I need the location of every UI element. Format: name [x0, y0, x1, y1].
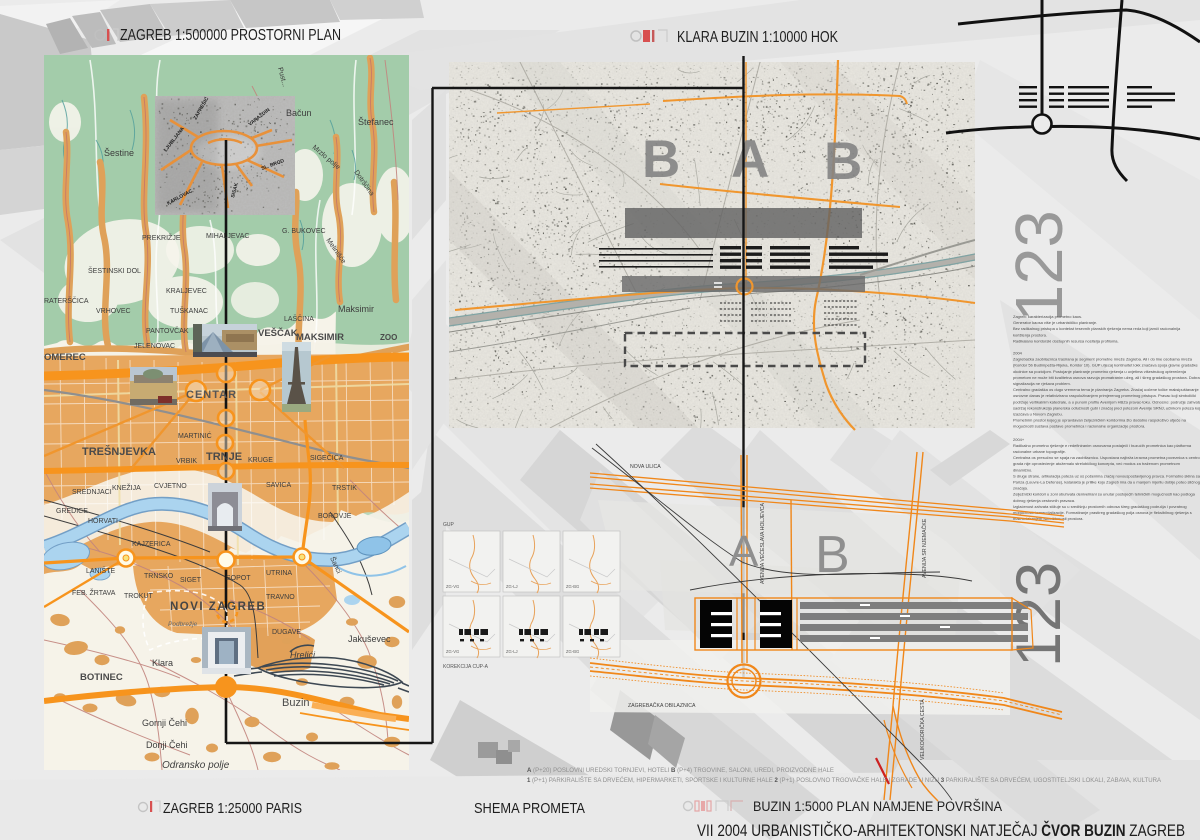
svg-text:Centralno gradaška os dugo vre: Centralno gradaška os dugo vremena tema … — [1013, 387, 1199, 392]
svg-text:Gornji Čehi: Gornji Čehi — [142, 718, 187, 728]
svg-text:TREŠNJEVKA: TREŠNJEVKA — [82, 445, 156, 458]
svg-text:Zagrebačka zaobilaznica trasir: Zagrebačka zaobilaznica trasirana je seg… — [1013, 357, 1193, 362]
svg-text:KLARA BUZIN 1:10000 HOK: KLARA BUZIN 1:10000 HOK — [677, 29, 839, 46]
svg-text:SREDNJACI: SREDNJACI — [72, 489, 112, 496]
svg-text:HORVATI: HORVATI — [88, 518, 118, 525]
svg-text:ZOO: ZOO — [380, 333, 397, 342]
svg-text:Podbrežje: Podbrežje — [168, 621, 198, 628]
svg-text:MAKSIMIR: MAKSIMIR — [296, 332, 344, 343]
svg-text:ZAGREB 1:500000 PROSTORNI PLAN: ZAGREB 1:500000 PROSTORNI PLAN — [120, 27, 341, 44]
svg-text:osnovne danas je relativiziran: osnovne danas je relativizirano raspolož… — [1013, 393, 1196, 398]
svg-text:mogućnosti sustava postave pro: mogućnosti sustava postave prometnica i … — [1013, 424, 1145, 429]
svg-text:A: A — [731, 130, 769, 189]
svg-text:Jakuševec: Jakuševec — [348, 634, 391, 644]
svg-text:grada nije oprostećenje atožem: grada nije oprostećenje atožemalo strelo… — [1013, 461, 1181, 466]
svg-text:LAŠČINA: LAŠČINA — [284, 314, 314, 323]
svg-text:TROKUT: TROKUT — [124, 593, 154, 600]
svg-text:CVJETNO: CVJETNO — [154, 483, 187, 490]
svg-text:Zagreb: karakterizacija promet: Zagreb: karakterizacija prometno kaos. — [1013, 314, 1082, 319]
svg-text:B: B — [815, 526, 850, 584]
svg-text:Donji Čehi: Donji Čehi — [146, 740, 188, 750]
svg-text:ZG-VG: ZG-VG — [446, 584, 459, 589]
svg-text:GUP: GUP — [443, 522, 455, 528]
svg-text:Bez radikalnog pristupa u kont: Bez radikalnog pristupa u kontekst tesev… — [1013, 326, 1181, 331]
svg-text:dobrog rješenja cestovnih prav: dobrog rješenja cestovnih pravaca. — [1013, 498, 1075, 503]
svg-text:123: 123 — [1002, 210, 1077, 322]
svg-text:FEB. ŽRTAVA: FEB. ŽRTAVA — [72, 588, 116, 597]
svg-text:ZAGREBAČKA OBILAZNICA: ZAGREBAČKA OBILAZNICA — [628, 702, 696, 709]
svg-text:ŠESTINSKI DOL: ŠESTINSKI DOL — [88, 266, 141, 275]
svg-text:(Koridor 5b Budimpešta-Rijeka,: (Koridor 5b Budimpešta-Rijeka, Koridor 1… — [1013, 363, 1198, 368]
svg-text:BOTINEC: BOTINEC — [80, 672, 123, 683]
svg-text:VEŠČAK: VEŠČAK — [258, 327, 298, 339]
svg-text:ZG-LJ: ZG-LJ — [506, 584, 518, 589]
svg-text:Hrelići: Hrelići — [290, 650, 316, 660]
svg-text:AVENIJA SR NJEMAČKE: AVENIJA SR NJEMAČKE — [921, 518, 928, 578]
svg-text:PANTOVČAK: PANTOVČAK — [146, 326, 189, 335]
svg-text:okolnice sa pozicijom. Postoja: okolnice sa pozicijom. Postojanje planir… — [1013, 369, 1187, 374]
svg-text:ZG-LJ: ZG-LJ — [506, 649, 518, 654]
svg-text:G. BUKOVEC: G. BUKOVEC — [282, 228, 326, 235]
svg-text:prometom ne može biti kvalitet: prometom ne može biti kvalitetna osnova … — [1013, 375, 1200, 380]
svg-text:VELIKOGORIČKA CESTA: VELIKOGORIČKA CESTA — [919, 699, 926, 760]
svg-text:Radikalno prometno rješenje e: Radikalno prometno rješenje e redefinira… — [1013, 443, 1192, 448]
svg-text:BUZIN 1:5000 PLAN NAMJENE POVR: BUZIN 1:5000 PLAN NAMJENE POVRŠINA — [753, 799, 1002, 814]
svg-text:ZG-BG: ZG-BG — [566, 649, 579, 654]
svg-text:KRALJEVEC: KRALJEVEC — [166, 288, 207, 295]
svg-text:GREDICE: GREDICE — [56, 508, 88, 515]
svg-text:2004: 2004 — [1013, 351, 1023, 356]
svg-text:Generator kaosa više je urbani: Generator kaosa više je urbanističko pla… — [1013, 320, 1097, 325]
svg-text:LANIŠTE: LANIŠTE — [86, 566, 116, 575]
svg-text:A: A — [729, 527, 759, 576]
svg-text:DUGAVE: DUGAVE — [272, 629, 301, 636]
svg-text:Pariza (Louvre-La Defense), ka: Pariza (Louvre-La Defense), katarakta je… — [1013, 480, 1200, 485]
svg-text:sadržaj rekonstrukcija planers: sadržaj rekonstrukcija planerska odlučno… — [1013, 405, 1200, 410]
svg-text:Klara: Klara — [152, 658, 173, 668]
svg-text:NOVA ULICA: NOVA ULICA — [630, 464, 661, 470]
svg-text:SAVICA: SAVICA — [266, 482, 291, 489]
svg-text:B: B — [824, 132, 862, 191]
svg-text:SIGET: SIGET — [180, 577, 202, 584]
svg-text:NOVI ZAGREB: NOVI ZAGREB — [170, 601, 266, 613]
svg-text:Buzin: Buzin — [282, 697, 310, 709]
svg-text:racionalne urbane topografije.: racionalne urbane topografije. — [1013, 449, 1066, 454]
svg-text:Prometnim prostor kojeg je opr: Prometnim prostor kojeg je opravdavan že… — [1013, 418, 1187, 423]
svg-text:TRNSKO: TRNSKO — [144, 573, 174, 580]
svg-text:Maksimir: Maksimir — [338, 304, 374, 314]
svg-text:Radikalano koridorski dostupni: Radikalano koridorski dostupnih resursa … — [1013, 338, 1119, 343]
svg-text:Bačun: Bačun — [286, 108, 312, 118]
svg-text:MARTINIĆ: MARTINIĆ — [178, 431, 212, 440]
svg-text:dinamično.: dinamično. — [1013, 467, 1032, 472]
svg-text:Odransko polje: Odransko polje — [162, 760, 230, 771]
svg-text:UTRINA: UTRINA — [266, 570, 292, 577]
svg-text:Centralna os presučno se spaja: Centralna os presučno se spaja na zaobil… — [1013, 455, 1200, 460]
svg-text:MIHALJEVAC: MIHALJEVAC — [206, 233, 249, 240]
svg-text:ZG-BG: ZG-BG — [566, 584, 579, 589]
svg-text:CENTAR: CENTAR — [186, 389, 237, 401]
svg-text:OMEREC: OMEREC — [44, 352, 86, 363]
svg-text:značaja.: značaja. — [1013, 486, 1028, 491]
svg-text:korištenja prostora.: korištenja prostora. — [1013, 332, 1047, 337]
svg-text:podržuje vertikalnim katedrale: podržuje vertikalnim katedrale, a u puno… — [1013, 399, 1200, 404]
svg-text:Štefanec: Štefanec — [358, 117, 394, 127]
svg-text:S druge strane, artikulacija p: S druge strane, artikulacija poteza uz o… — [1013, 473, 1200, 478]
svg-text:KOREKCIJA CUP-A: KOREKCIJA CUP-A — [443, 664, 489, 670]
svg-text:BOROVJE: BOROVJE — [318, 513, 352, 520]
svg-text:JELENOVAC: JELENOVAC — [134, 343, 175, 350]
svg-text:KAJZERICA: KAJZERICA — [132, 541, 171, 548]
svg-text:TRAVNO: TRAVNO — [266, 594, 295, 601]
svg-text:A (P+20) POSLOVNI UREDSKI TORN: A (P+20) POSLOVNI UREDSKI TORNJEVI, HOTE… — [527, 767, 834, 774]
svg-text:SHEMA PROMETA: SHEMA PROMETA — [474, 801, 585, 817]
svg-text:SIGEČICA: SIGEČICA — [310, 453, 344, 462]
svg-text:KRUGE: KRUGE — [248, 457, 273, 464]
svg-text:Zelježnički koridori u zoni ob: Zelježnički koridori u zoni obuhvata den… — [1013, 492, 1196, 497]
svg-text:VRHOVEC: VRHOVEC — [96, 308, 131, 315]
svg-text:TRSTIK: TRSTIK — [332, 485, 357, 492]
svg-text:AVENIJA VEĆESLAVA HOLJEVCA: AVENIJA VEĆESLAVA HOLJEVCA — [759, 502, 766, 584]
svg-text:TRNJE: TRNJE — [206, 451, 242, 463]
svg-text:2004+: 2004+ — [1013, 437, 1025, 442]
svg-text:ZG-VG: ZG-VG — [446, 649, 459, 654]
svg-text:Izglaćenost zahvata stižuje su: Izglaćenost zahvata stižuje su u središn… — [1013, 504, 1187, 509]
svg-text:izazćava u Novom Zagrebu.: izazćava u Novom Zagrebu. — [1013, 412, 1063, 417]
svg-text:SOPOT: SOPOT — [226, 575, 251, 582]
svg-text:KNEŽIJA: KNEŽIJA — [112, 483, 141, 492]
svg-text:Šestine: Šestine — [104, 148, 134, 158]
svg-text:signalizacija ne rješava probl: signalizacija ne rješava problem. — [1013, 381, 1071, 386]
svg-text:RATERŠČICA: RATERŠČICA — [44, 296, 89, 305]
svg-text:VRBIK: VRBIK — [176, 458, 197, 465]
svg-text:ZAGREB 1:25000 PARIS: ZAGREB 1:25000 PARIS — [163, 801, 302, 817]
svg-text:VII 2004 URBANISTIČKO-ARHITEKT: VII 2004 URBANISTIČKO-ARHITEKTONSKI NATJ… — [697, 821, 1185, 840]
svg-text:1 (P+1) PARKIRALIŠTE SA DRVEĆE: 1 (P+1) PARKIRALIŠTE SA DRVEĆEM, HIPERMA… — [527, 775, 1161, 784]
svg-text:mogućnosti komercijalizacije.: mogućnosti komercijalizacije. Formatiran… — [1013, 510, 1192, 515]
svg-text:TUŠKANAC: TUŠKANAC — [170, 306, 208, 315]
svg-text:PREKRIŽJE: PREKRIŽJE — [142, 233, 181, 242]
svg-text:B: B — [642, 130, 680, 189]
